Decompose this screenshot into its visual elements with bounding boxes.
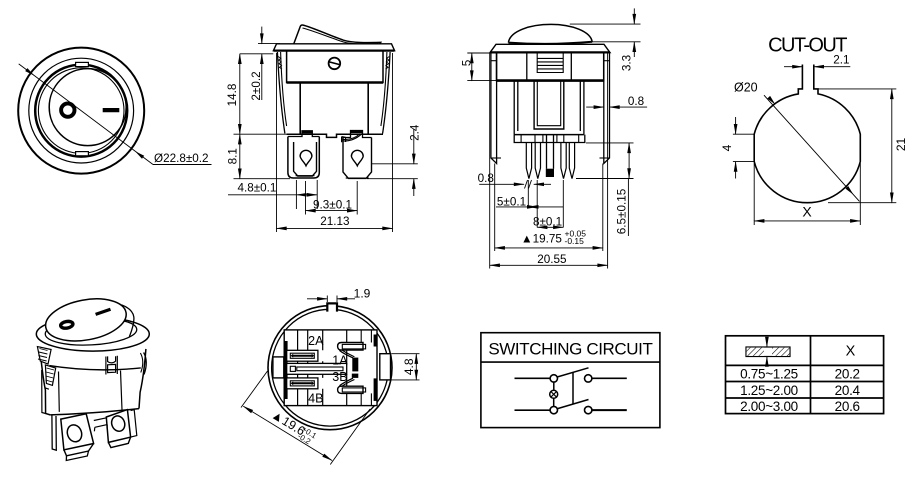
- svg-text:2.00~3.00: 2.00~3.00: [740, 399, 798, 414]
- svg-text:4.8: 4.8: [402, 358, 416, 375]
- svg-text:5±0.1: 5±0.1: [497, 196, 526, 209]
- svg-text:4: 4: [720, 144, 734, 151]
- svg-text:20.6: 20.6: [835, 399, 860, 414]
- svg-text:20.2: 20.2: [835, 366, 860, 381]
- svg-text:2A: 2A: [308, 334, 324, 348]
- svg-text:1A: 1A: [332, 353, 348, 367]
- svg-text:20.4: 20.4: [835, 383, 861, 398]
- svg-text:-0.15: -0.15: [565, 236, 585, 246]
- svg-text:8±0.1: 8±0.1: [533, 215, 562, 228]
- svg-text:20.55: 20.55: [537, 253, 567, 266]
- svg-text:2±0.2: 2±0.2: [250, 71, 263, 100]
- svg-text:8.1: 8.1: [227, 148, 240, 164]
- svg-text:14.8: 14.8: [226, 84, 239, 107]
- svg-text:9.3±0.1: 9.3±0.1: [313, 198, 352, 211]
- svg-text:1.9: 1.9: [354, 287, 371, 301]
- svg-text:X: X: [846, 343, 856, 359]
- svg-text:3.3: 3.3: [621, 55, 634, 71]
- svg-text:2.1: 2.1: [833, 54, 849, 67]
- svg-text:0.8: 0.8: [478, 172, 494, 185]
- svg-text:21.13: 21.13: [320, 215, 349, 228]
- svg-text:5: 5: [461, 59, 474, 66]
- svg-text:Ø20: Ø20: [734, 81, 758, 95]
- svg-text:2.4: 2.4: [409, 124, 422, 141]
- svg-text:3B: 3B: [332, 370, 347, 384]
- svg-text:▲19.75: ▲19.75: [521, 233, 562, 246]
- svg-text:1.25~2.00: 1.25~2.00: [740, 383, 798, 398]
- svg-text:21: 21: [894, 138, 908, 152]
- svg-text:0.75~1.25: 0.75~1.25: [740, 366, 798, 381]
- svg-text:X: X: [802, 204, 812, 220]
- svg-text:SWITCHING CIRCUIT: SWITCHING CIRCUIT: [488, 340, 652, 359]
- svg-text:6.5±0.15: 6.5±0.15: [616, 188, 629, 234]
- svg-text:Ø22.8±0.2: Ø22.8±0.2: [154, 152, 209, 165]
- svg-text:4B: 4B: [308, 392, 323, 406]
- svg-text:0.8: 0.8: [628, 95, 644, 108]
- svg-text:4.8±0.1: 4.8±0.1: [238, 182, 277, 195]
